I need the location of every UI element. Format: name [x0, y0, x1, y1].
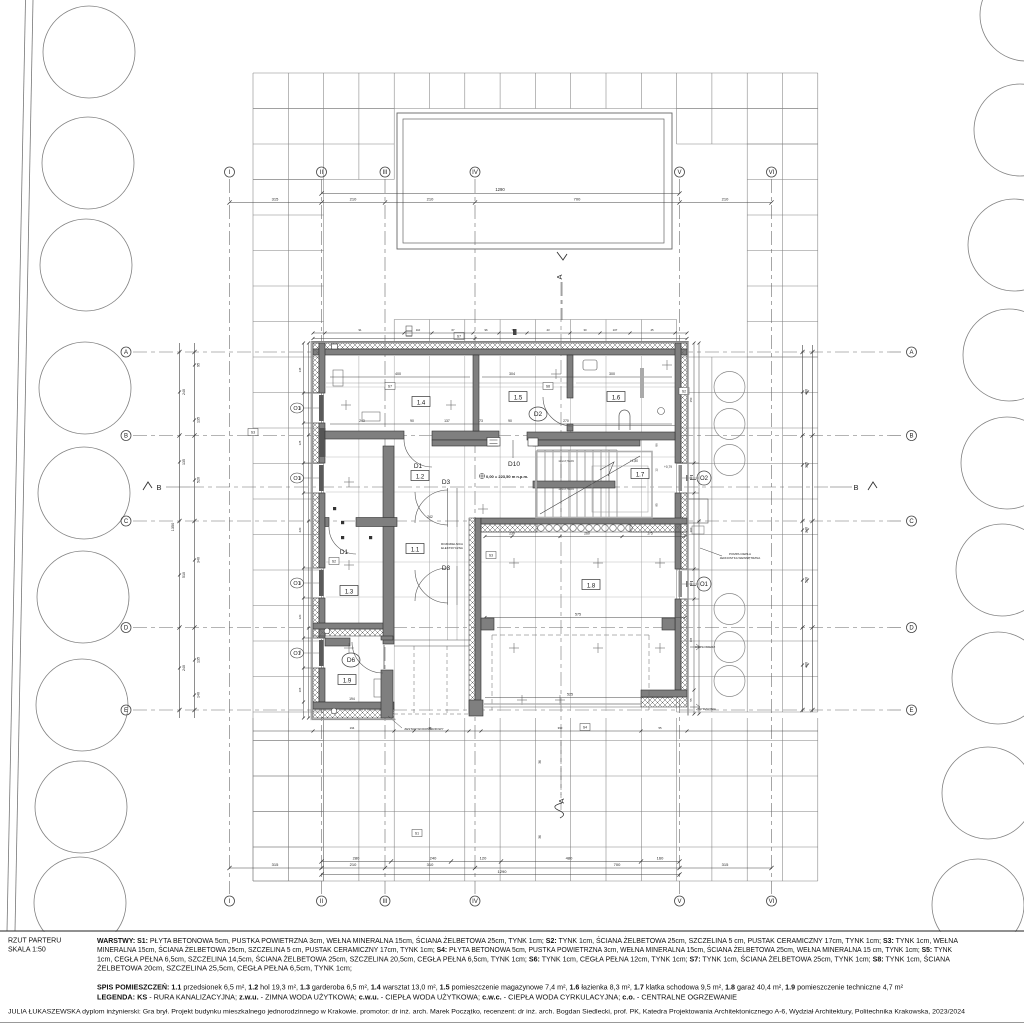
- svg-text:S1: S1: [415, 832, 419, 836]
- svg-text:43: 43: [546, 328, 550, 332]
- svg-text:S3: S3: [489, 554, 493, 558]
- svg-text:400: 400: [805, 662, 809, 668]
- svg-text:1.6: 1.6: [612, 396, 621, 402]
- svg-text:1.4: 1.4: [417, 401, 426, 407]
- svg-text:A: A: [909, 350, 913, 356]
- svg-text:LEGENDA: KS - RURA KANALIZACYJ: LEGENDA: KS - RURA KANALIZACYJNA; z.w.u.…: [97, 993, 737, 1002]
- svg-text:67: 67: [451, 328, 455, 332]
- svg-text:210: 210: [427, 197, 434, 202]
- svg-text:C: C: [124, 519, 129, 525]
- svg-text:120: 120: [480, 856, 487, 861]
- svg-text:D: D: [124, 626, 129, 632]
- svg-text:194: 194: [350, 726, 355, 730]
- svg-text:575: 575: [575, 613, 581, 617]
- svg-text:WYRZUTNIA: WYRZUTNIA: [698, 707, 716, 711]
- svg-text:90: 90: [508, 419, 512, 423]
- svg-text:240: 240: [430, 856, 437, 861]
- svg-text:A: A: [124, 350, 128, 356]
- svg-text:280: 280: [353, 856, 360, 861]
- svg-text:1.5: 1.5: [514, 396, 523, 402]
- svg-text:ŻELBETOWA 20cm, SZCZELINA 25,5: ŻELBETOWA 20cm, SZCZELINA 25,5cm, CEGŁA …: [97, 964, 352, 973]
- svg-text:S2: S2: [332, 560, 336, 564]
- svg-text:340: 340: [197, 557, 201, 563]
- svg-text:90: 90: [298, 650, 302, 654]
- svg-text:110: 110: [416, 328, 421, 332]
- svg-text:36: 36: [538, 760, 542, 764]
- svg-text:140: 140: [197, 692, 201, 698]
- svg-text:210: 210: [722, 197, 729, 202]
- svg-text:12: 12: [655, 468, 659, 472]
- svg-text:D2: D2: [534, 411, 543, 418]
- svg-text:+0,79: +0,79: [664, 465, 672, 469]
- svg-text:IV: IV: [472, 899, 478, 905]
- svg-text:480: 480: [566, 856, 573, 861]
- svg-text:B: B: [909, 434, 913, 440]
- svg-text:1.1: 1.1: [411, 548, 420, 554]
- svg-text:D1: D1: [414, 463, 423, 470]
- svg-text:137: 137: [444, 419, 450, 423]
- svg-text:E: E: [124, 708, 128, 714]
- svg-text:1.7: 1.7: [636, 473, 645, 479]
- svg-text:ELEKTRYCZNA: ELEKTRYCZNA: [441, 546, 463, 550]
- svg-text:220: 220: [298, 527, 302, 532]
- svg-text:1.9: 1.9: [343, 679, 352, 685]
- svg-text:107: 107: [613, 328, 618, 332]
- svg-text:240: 240: [182, 389, 186, 395]
- svg-text:D6: D6: [347, 657, 356, 664]
- svg-text:III: III: [382, 170, 387, 176]
- svg-text:36: 36: [538, 835, 542, 839]
- svg-text:105: 105: [298, 687, 302, 692]
- svg-text:S7: S7: [388, 385, 392, 389]
- svg-text:RZUT PARTERU: RZUT PARTERU: [8, 938, 61, 945]
- svg-text:D3: D3: [442, 565, 451, 572]
- svg-text:1.3: 1.3: [345, 590, 354, 596]
- svg-text:242: 242: [427, 515, 433, 519]
- svg-text:A: A: [555, 274, 564, 279]
- svg-text:O1: O1: [700, 582, 709, 588]
- svg-text:III: III: [382, 899, 387, 905]
- svg-text:MINERALNA 15cm, ŚCIANA ŻELBETO: MINERALNA 15cm, ŚCIANA ŻELBETOWA 25cm, S…: [97, 945, 952, 954]
- svg-text:525: 525: [567, 693, 573, 697]
- svg-text:150: 150: [689, 397, 693, 402]
- svg-text:510: 510: [182, 572, 186, 578]
- svg-text:210: 210: [350, 862, 357, 867]
- svg-text:II: II: [320, 899, 324, 905]
- svg-text:135: 135: [197, 417, 201, 423]
- svg-text:270: 270: [563, 419, 569, 423]
- svg-text:V: V: [677, 170, 681, 176]
- svg-text:S8: S8: [546, 385, 550, 389]
- svg-text:86: 86: [655, 443, 659, 447]
- svg-text:S2: S2: [682, 390, 686, 394]
- svg-text:90: 90: [689, 582, 693, 586]
- svg-text:S7: S7: [457, 335, 461, 339]
- svg-text:VI: VI: [769, 170, 775, 176]
- svg-text:90: 90: [298, 581, 302, 585]
- svg-text:135: 135: [182, 459, 186, 465]
- svg-text:1cm, CEGŁA PEŁNA 6,5cm, SZCZEL: 1cm, CEGŁA PEŁNA 6,5cm, SZCZELINA 14,5cm…: [97, 954, 950, 963]
- svg-text:310: 310: [427, 862, 434, 867]
- svg-text:400: 400: [395, 372, 401, 376]
- svg-text:240: 240: [182, 665, 186, 671]
- svg-text:96: 96: [484, 328, 488, 332]
- svg-text:1350: 1350: [171, 523, 175, 531]
- svg-text:400: 400: [805, 389, 809, 395]
- svg-text:B: B: [124, 434, 128, 440]
- svg-text:45: 45: [650, 328, 654, 332]
- svg-text:0,00 = 223,50 m n.p.m.: 0,00 = 223,50 m n.p.m.: [486, 474, 528, 479]
- svg-text:210: 210: [350, 197, 357, 202]
- svg-text:315: 315: [722, 862, 729, 867]
- svg-text:IV: IV: [472, 170, 478, 176]
- svg-text:D3: D3: [442, 479, 451, 486]
- svg-text:239: 239: [509, 532, 515, 536]
- svg-text:520: 520: [805, 577, 809, 583]
- svg-text:10x17,5x29: 10x17,5x29: [558, 487, 574, 491]
- svg-text:JEDNOSTKA WEWNĘTRZNA: JEDNOSTKA WEWNĘTRZNA: [720, 556, 761, 560]
- svg-text:135: 135: [197, 657, 201, 663]
- svg-text:90: 90: [410, 419, 414, 423]
- svg-text:71: 71: [511, 328, 515, 332]
- svg-text:240: 240: [805, 527, 809, 533]
- svg-text:304: 304: [509, 372, 515, 376]
- svg-text:JULIA ŁUKASZEWSKA dyplom inżyn: JULIA ŁUKASZEWSKA dyplom inżynierski: Gr…: [8, 1009, 965, 1016]
- svg-text:95: 95: [197, 363, 201, 367]
- svg-text:135: 135: [805, 462, 809, 468]
- svg-text:WARSTWY: S1: PŁYTA BETONOWA 5c: WARSTWY: S1: PŁYTA BETONOWA 5cm, PUSTKA …: [97, 936, 958, 945]
- svg-text:30: 30: [583, 328, 587, 332]
- svg-text:55: 55: [689, 698, 693, 702]
- svg-text:145: 145: [298, 367, 302, 372]
- svg-text:95: 95: [655, 503, 659, 507]
- svg-text:300: 300: [609, 372, 615, 376]
- svg-text:1290: 1290: [495, 187, 505, 192]
- svg-text:90: 90: [689, 476, 693, 480]
- svg-text:260: 260: [584, 532, 590, 536]
- svg-text:700: 700: [574, 197, 581, 202]
- svg-text:SKALA 1:50: SKALA 1:50: [8, 947, 46, 954]
- svg-text:115: 115: [689, 637, 693, 642]
- svg-text:315: 315: [272, 862, 279, 867]
- svg-text:1290: 1290: [498, 869, 508, 874]
- svg-text:85: 85: [428, 726, 432, 730]
- svg-text:125: 125: [298, 440, 302, 445]
- svg-text:SPIS POMIESZCZEŃ: 1.1 przedsio: SPIS POMIESZCZEŃ: 1.1 przedsionek 6,5 m²…: [97, 983, 904, 992]
- svg-text:A: A: [557, 798, 566, 803]
- svg-text:520: 520: [197, 477, 201, 483]
- svg-text:V: V: [677, 899, 681, 905]
- svg-text:1.2: 1.2: [416, 475, 425, 481]
- svg-text:B: B: [853, 483, 858, 492]
- svg-text:B: B: [156, 483, 161, 492]
- svg-text:390: 390: [558, 726, 563, 730]
- svg-text:315: 315: [272, 197, 279, 202]
- svg-text:194: 194: [349, 697, 355, 701]
- svg-text:ZESTAW WODOMIERZOWY: ZESTAW WODOMIERZOWY: [404, 727, 443, 731]
- svg-text:D10: D10: [508, 461, 520, 468]
- svg-text:73: 73: [479, 419, 483, 423]
- svg-text:O2: O2: [700, 476, 709, 482]
- svg-text:D: D: [909, 626, 914, 632]
- svg-text:91: 91: [358, 328, 362, 332]
- svg-text:160: 160: [657, 856, 664, 861]
- svg-text:D1: D1: [340, 549, 349, 556]
- svg-text:II: II: [320, 170, 324, 176]
- svg-text:55: 55: [658, 726, 662, 730]
- svg-text:120: 120: [298, 614, 302, 619]
- svg-text:175: 175: [647, 532, 653, 536]
- svg-text:700: 700: [614, 862, 621, 867]
- svg-text:90: 90: [298, 406, 302, 410]
- svg-text:S4: S4: [583, 726, 587, 730]
- svg-text:90: 90: [298, 476, 302, 480]
- svg-text:1.8: 1.8: [587, 584, 596, 590]
- svg-text:C: C: [909, 519, 914, 525]
- svg-text:S3: S3: [251, 431, 255, 435]
- svg-text:10x17,5x29: 10x17,5x29: [558, 459, 574, 463]
- svg-text:VI: VI: [769, 899, 775, 905]
- svg-text:E: E: [909, 708, 913, 714]
- svg-text:+1,80: +1,80: [630, 459, 638, 463]
- svg-text:100: 100: [689, 527, 693, 532]
